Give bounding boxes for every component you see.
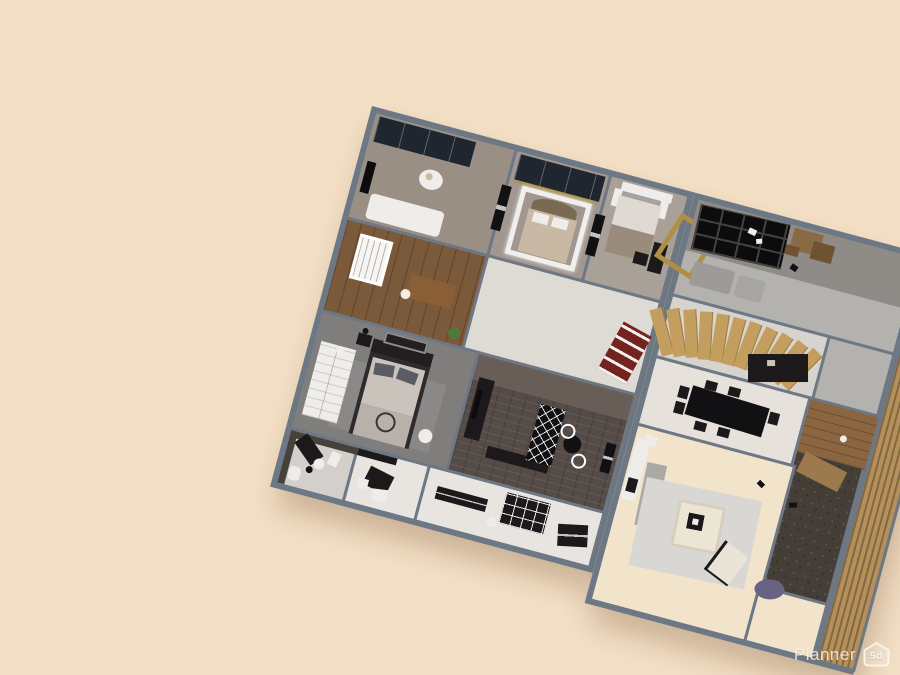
art-inner-black (686, 512, 705, 531)
white-object (756, 239, 762, 245)
render-canvas: Planner 5d (0, 0, 900, 675)
stair-step (683, 309, 698, 358)
laundry-basket (371, 488, 388, 502)
floor-plan-3d (258, 106, 900, 675)
desk-object (767, 360, 775, 366)
house-5d-icon: 5d (863, 642, 890, 667)
desk (557, 524, 588, 548)
dark-speck (789, 502, 797, 507)
stair-desk (748, 354, 808, 382)
watermark-brand-text: Planner (794, 645, 856, 665)
planner5d-watermark: Planner 5d (794, 642, 890, 667)
logo-5d-text: 5d (870, 651, 883, 662)
